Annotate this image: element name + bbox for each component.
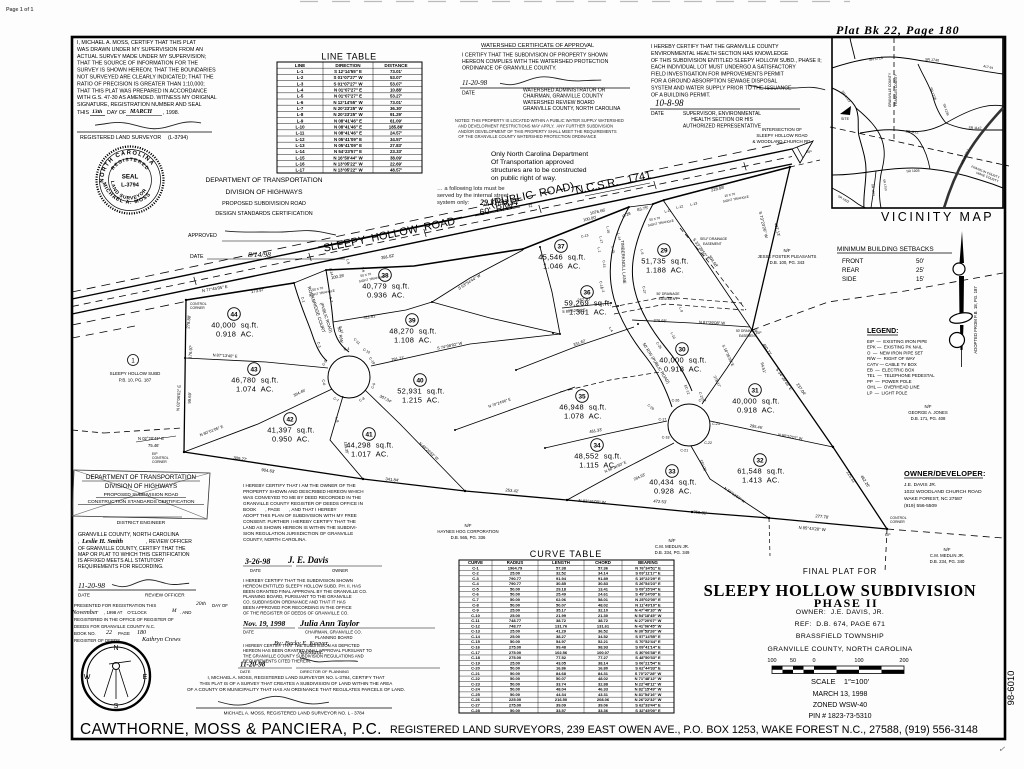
svg-text:WAS DRAWN UNDER MY SUPERVISION: WAS DRAWN UNDER MY SUPERVISION FROM AN: [77, 47, 203, 53]
svg-text:C-8: C-8: [472, 602, 479, 607]
svg-text:MINIMUM BUILDING SETBACKS: MINIMUM BUILDING SETBACKS: [837, 246, 934, 253]
svg-text:29: 29: [660, 247, 668, 254]
svg-text:Of Transportation approved: Of Transportation approved: [491, 159, 574, 166]
svg-text:1.188 AC.: 1.188 AC.: [646, 266, 684, 275]
svg-text:C-6: C-6: [472, 592, 479, 597]
svg-text:C-1: C-1: [472, 565, 479, 570]
svg-text:41: 41: [365, 431, 373, 438]
svg-text:I HEREBY CERTIFY THAT THE SUBD: I HEREBY CERTIFY THAT THE SUBDIVISION SH…: [243, 578, 353, 583]
svg-text:45,546 sq.ft.: 45,546 sq.ft.: [538, 252, 586, 261]
svg-text:51,735 sq.ft.: 51,735 sq.ft.: [641, 256, 689, 265]
svg-text:REGISTERED LAND SURVEYORS, 239: REGISTERED LAND SURVEYORS, 239 EAST OWEN…: [390, 724, 978, 736]
svg-text:48.57′: 48.57′: [390, 168, 402, 173]
svg-text:L-14: L-14: [295, 149, 305, 154]
svg-text:S 70°27′28″ W: S 70°27′28″ W: [635, 671, 662, 676]
svg-text:THIS: THIS: [77, 110, 90, 116]
svg-text:SION REGULATION JURISDICTION O: SION REGULATION JURISDICTION OF GRANVILL…: [243, 531, 353, 536]
svg-text:N 22°48′11″ W: N 22°48′11″ W: [635, 681, 662, 686]
svg-text:C-22: C-22: [704, 441, 712, 445]
svg-text:WATERSHED ADMINISTRATOR OR: WATERSHED ADMINISTRATOR OR: [523, 88, 606, 94]
svg-text:N 27°20′07″ W: N 27°20′07″ W: [635, 618, 662, 623]
svg-text:E: E: [143, 674, 148, 681]
svg-text:30.83: 30.83: [598, 581, 609, 586]
svg-text:748.77: 748.77: [509, 618, 522, 623]
svg-text:77.52: 77.52: [556, 655, 567, 660]
svg-text:22.69′: 22.69′: [390, 161, 402, 166]
svg-text:L-1: L-1: [297, 69, 304, 74]
svg-text:50.00: 50.00: [510, 692, 521, 697]
svg-text:VICINITY MAP: VICINITY MAP: [881, 210, 994, 224]
svg-text:53.07′: 53.07′: [390, 75, 402, 80]
svg-text:SUPERVISOR, ENVIRONMENTAL: SUPERVISOR, ENVIRONMENTAL: [683, 111, 761, 117]
svg-text:L-16: L-16: [295, 161, 305, 166]
svg-text:FRONT: FRONT: [842, 258, 864, 265]
svg-text:SLEEPY HOLLOW SUBD: SLEEPY HOLLOW SUBD: [110, 371, 161, 376]
svg-text:C-16: C-16: [471, 644, 480, 649]
svg-text:L-6: L-6: [297, 100, 304, 105]
svg-text:EIP — EXISTING IRON PIPE: EIP — EXISTING IRON PIPE: [867, 339, 927, 344]
svg-text:CURVE TABLE: CURVE TABLE: [530, 549, 603, 559]
svg-text:225.00: 225.00: [509, 697, 522, 702]
svg-text:L-9: L-9: [297, 118, 304, 123]
svg-text:50': 50': [916, 258, 924, 265]
svg-text:CORNER: CORNER: [890, 520, 905, 524]
svg-text:S 62°33′44″ E: S 62°33′44″ E: [635, 703, 661, 708]
svg-text:33.74: 33.74: [556, 681, 567, 686]
svg-text:CO. SUBDIVISION ORDINANCE AND: CO. SUBDIVISION ORDINANCE AND THAT IT HA…: [243, 600, 346, 605]
svg-text:41,397 sq.ft.: 41,397 sq.ft.: [267, 425, 315, 434]
svg-text:OF A COUNTY OR MUNICIPALITY TH: OF A COUNTY OR MUNICIPALITY THAT HAS AN …: [187, 687, 405, 692]
svg-text:Page 1 of 1: Page 1 of 1: [6, 7, 34, 13]
svg-text:0.928 AC.: 0.928 AC.: [654, 487, 692, 496]
svg-text:PHASE II: PHASE II: [814, 596, 878, 610]
svg-text:50.07: 50.07: [556, 676, 567, 681]
svg-text:84.31: 84.31: [598, 671, 609, 676]
svg-text:73.01′: 73.01′: [390, 100, 402, 105]
svg-text:34.52: 34.52: [598, 634, 609, 639]
svg-text:29.18: 29.18: [556, 586, 567, 591]
svg-text:50.00: 50.00: [510, 592, 521, 597]
svg-text:52,931 sq.ft.: 52,931 sq.ft.: [397, 386, 445, 395]
svg-text:98-6010: 98-6010: [1006, 671, 1017, 706]
svg-text:34.14: 34.14: [598, 571, 609, 576]
svg-text:D.B. 100, PG. 343: D.B. 100, PG. 343: [770, 260, 805, 265]
svg-text:C-13: C-13: [471, 629, 480, 634]
svg-text:208.06: 208.06: [597, 697, 610, 702]
svg-text:S 26°54′23″ E: S 26°54′23″ E: [635, 581, 661, 586]
svg-text:CAWTHORNE, MOSS & PANCIERA, P.: CAWTHORNE, MOSS & PANCIERA, P.C.: [80, 721, 382, 738]
svg-text:10-8-98: 10-8-98: [655, 98, 684, 108]
svg-text:42: 42: [286, 416, 294, 423]
svg-text:DIVISION OF HIGHWAYS: DIVISION OF HIGHWAYS: [105, 483, 177, 490]
svg-text:DAY OF: DAY OF: [107, 110, 127, 116]
svg-text:, 1998 AT O’CLOCK: , 1998 AT O’CLOCK: [104, 610, 147, 615]
svg-text:REVIEW OFFICER: REVIEW OFFICER: [145, 593, 185, 598]
svg-text:32: 32: [756, 457, 764, 464]
svg-text:OF THE GRANVILLE COUNTY WATERS: OF THE GRANVILLE COUNTY WATERSHED PROTEC…: [455, 134, 597, 139]
svg-text:21.30: 21.30: [598, 613, 609, 618]
svg-text:SCALE 1″=100′: SCALE 1″=100′: [811, 677, 870, 686]
svg-text:40,000 sq.ft.: 40,000 sq.ft.: [211, 320, 259, 329]
svg-text:BOOK NO.: BOOK NO.: [74, 631, 96, 636]
svg-text:GRANVILLE COUNTY REGISTER OF D: GRANVILLE COUNTY REGISTER OF DEEDS OFFIC…: [243, 501, 363, 506]
svg-text:N 20°23′25″ W: N 20°23′25″ W: [333, 112, 363, 117]
svg-text:S 49°24′09″ E: S 49°24′09″ E: [635, 592, 661, 597]
svg-text:1.074 AC.: 1.074 AC.: [236, 385, 274, 394]
svg-text:THAT THE SOURCE OF INFORMATION: THAT THE SOURCE OF INFORMATION FOR THE: [77, 61, 199, 67]
svg-text:WAKE FOREST, NC 27587: WAKE FOREST, NC 27587: [904, 496, 963, 502]
svg-text:54.97: 54.97: [556, 639, 567, 644]
svg-text:N 30°53′26″ W: N 30°53′26″ W: [635, 629, 662, 634]
svg-text:PAGE: PAGE: [118, 631, 130, 636]
svg-text:21.99: 21.99: [556, 613, 567, 618]
svg-text:24.61: 24.61: [598, 592, 609, 597]
svg-text:62.06: 62.06: [556, 597, 567, 602]
svg-text:Kathryn Crews: Kathryn Crews: [141, 636, 181, 643]
svg-text:OWNER: OWNER: [332, 568, 348, 573]
svg-text:CORNER: CORNER: [152, 460, 167, 464]
svg-text:C-26: C-26: [672, 399, 680, 403]
svg-text:58.01: 58.01: [598, 597, 609, 602]
svg-text:REQUIREMENTS FOR RECORDING.: REQUIREMENTS FOR RECORDING.: [78, 564, 164, 570]
svg-text:33: 33: [668, 468, 676, 475]
svg-text:275.00: 275.00: [509, 644, 522, 649]
svg-text:BEEN GRANTED FINAL APPROVAL BY: BEEN GRANTED FINAL APPROVAL BY THE GRANV…: [243, 589, 367, 594]
svg-text:N 26°22′32″ W: N 26°22′32″ W: [635, 697, 662, 702]
svg-text:L-6: L-6: [640, 249, 645, 255]
svg-text:1022 WOODLAND CHURCH ROAD: 1022 WOODLAND CHURCH ROAD: [904, 489, 982, 495]
svg-text:25.00: 25.00: [510, 613, 521, 618]
svg-text:39: 39: [408, 317, 416, 324]
svg-text:3-26-98: 3-26-98: [244, 557, 270, 566]
svg-text:32.88: 32.88: [598, 681, 609, 686]
svg-text:48.04: 48.04: [556, 687, 567, 692]
svg-text:AUTHORIZED REPRESENTATIVE: AUTHORIZED REPRESENTATIVE: [683, 123, 762, 129]
svg-text:system only:: system only:: [437, 200, 470, 206]
svg-text:DIRECTOR OF PLANNING: DIRECTOR OF PLANNING: [300, 669, 349, 674]
svg-text:SIDE: SIDE: [842, 276, 856, 283]
svg-text:S 06°21′54″ E: S 06°21′54″ E: [635, 660, 661, 665]
svg-text:40,000 sq.ft.: 40,000 sq.ft.: [659, 355, 707, 364]
svg-text:22: 22: [106, 630, 112, 636]
svg-text:11-20-98: 11-20-98: [78, 581, 105, 590]
svg-text:DATE: DATE: [243, 630, 254, 635]
svg-text:D.B. 234, PG. 340: D.B. 234, PG. 340: [930, 559, 965, 564]
svg-text:C-25: C-25: [471, 692, 480, 697]
svg-text:50.00: 50.00: [510, 586, 521, 591]
svg-text:REAR: REAR: [842, 267, 860, 274]
svg-text:N 13°05′22″ W: N 13°05′22″ W: [333, 168, 363, 173]
svg-text:790.77: 790.77: [509, 581, 522, 586]
svg-text:THAT THIS PLAT WAS PREPARED IN: THAT THIS PLAT WAS PREPARED IN ACCORDANC…: [77, 88, 208, 94]
svg-text:, 1998.: , 1998.: [163, 110, 179, 116]
svg-text:HEREON COMPLIES WITH THE WATER: HEREON COMPLIES WITH THE WATERSHED PROTE…: [462, 59, 609, 65]
svg-text:C-23: C-23: [471, 681, 480, 686]
svg-text:91.94: 91.94: [556, 576, 567, 581]
svg-text:PLANNING BOARD, PURSUANT TO TH: PLANNING BOARD, PURSUANT TO THE GRANVILL…: [243, 594, 352, 599]
svg-text:275.00: 275.00: [509, 655, 522, 660]
svg-text:EASEMENT: EASEMENT: [739, 334, 757, 338]
svg-text:INTERSECTION OF: INTERSECTION OF: [762, 127, 802, 132]
svg-text:I, MICHAEL A. MOSS, CERTIFY TH: I, MICHAEL A. MOSS, CERTIFY THAT THIS PL…: [77, 40, 197, 46]
svg-text:EASEMENT: EASEMENT: [703, 242, 722, 246]
svg-text:50.00: 50.00: [510, 639, 521, 644]
svg-text:50: 50: [790, 658, 796, 664]
svg-text:13th: 13th: [92, 109, 102, 115]
svg-text:N/F: N/F: [465, 523, 472, 528]
svg-text:L-1: L-1: [597, 247, 602, 253]
svg-text:CONSTRUCTION STANDARDS CERTIFI: CONSTRUCTION STANDARDS CERTIFICATION: [88, 499, 195, 505]
svg-text:N 05°41′09″ E: N 05°41′09″ E: [334, 143, 362, 148]
svg-text:L-2: L-2: [297, 75, 304, 80]
svg-text:30: 30: [678, 346, 686, 353]
svg-text:I CERTIFY THAT THE SUBDIVISION: I CERTIFY THAT THE SUBDIVISION OF PROPER…: [462, 53, 608, 59]
svg-text:REGISTERED IN THE OFFICE OF RE: REGISTERED IN THE OFFICE OF REGISTER OF: [74, 617, 174, 622]
svg-text:25.00: 25.00: [510, 634, 521, 639]
svg-text:40,000 sq.ft.: 40,000 sq.ft.: [732, 396, 780, 405]
svg-text:0.918 AC.: 0.918 AC.: [216, 330, 254, 339]
svg-text:1.413 AC.: 1.413 AC.: [742, 476, 780, 485]
svg-text:77.27: 77.27: [598, 655, 609, 660]
svg-text:ENVIRONMENTAL HEALTH SECTION H: ENVIRONMENTAL HEALTH SECTION HAS KNOWLED…: [651, 51, 789, 57]
svg-text:43.31: 43.31: [598, 692, 609, 697]
svg-text:1.078 AC.: 1.078 AC.: [564, 412, 602, 421]
svg-text:S 01°07′27″ W: S 01°07′27″ W: [333, 81, 363, 86]
svg-text:36: 36: [583, 289, 591, 296]
svg-text:38.72: 38.72: [556, 618, 567, 623]
svg-text:DATE: DATE: [651, 111, 665, 117]
svg-text:S: S: [114, 703, 119, 710]
svg-text:200: 200: [899, 658, 908, 664]
svg-text:… a following lots must be: … a following lots must be: [437, 186, 505, 192]
svg-text:FINAL PLAT FOR: FINAL PLAT FOR: [803, 567, 877, 576]
svg-text:SURVEY IS SHOWN HEREON; THAT T: SURVEY IS SHOWN HEREON; THAT THE BOUNDAR…: [77, 68, 216, 74]
svg-text:, REVIEW OFFICER: , REVIEW OFFICER: [146, 539, 192, 545]
svg-text:32.10: 32.10: [598, 608, 609, 613]
svg-text:BRASSFIELD TOWNSHIP: BRASSFIELD TOWNSHIP: [796, 633, 884, 640]
svg-text:L-10: L-10: [295, 124, 305, 129]
svg-text:C-27: C-27: [471, 703, 480, 708]
svg-text:46.33: 46.33: [598, 687, 609, 692]
svg-text:CHORD: CHORD: [595, 560, 611, 565]
svg-text:C-15: C-15: [602, 260, 607, 268]
svg-text:40,434 sq.ft.: 40,434 sq.ft.: [649, 477, 697, 486]
svg-text:C-18: C-18: [662, 436, 670, 440]
svg-text:1.108 AC.: 1.108 AC.: [394, 336, 432, 345]
svg-text:0.950 AC.: 0.950 AC.: [272, 435, 310, 444]
svg-text:1.017 AC.: 1.017 AC.: [351, 450, 389, 459]
svg-text:L-4: L-4: [297, 87, 304, 92]
svg-text:REGISTERED LAND SURVEYOR: REGISTERED LAND SURVEYOR: [80, 135, 161, 141]
svg-text:N 54°18′45″ W: N 54°18′45″ W: [635, 613, 662, 618]
svg-text:48.02: 48.02: [598, 602, 609, 607]
svg-text:C.M. MEDLIN JR.: C.M. MEDLIN JR.: [655, 544, 689, 549]
svg-text:C-26: C-26: [471, 697, 480, 702]
svg-text:ACTUAL SURVEY MADE UNDER MY SU: ACTUAL SURVEY MADE UNDER MY SUPERVISION;: [77, 54, 206, 60]
svg-text:OWNER/DEVELOPER:: OWNER/DEVELOPER:: [904, 469, 986, 478]
svg-text:16.86: 16.86: [556, 666, 567, 671]
svg-text:AND DEVELOPMENT RESTRICTIONS M: AND DEVELOPMENT RESTRICTIONS MAY APPLY. …: [455, 123, 613, 128]
svg-text:25.00: 25.00: [510, 629, 521, 634]
svg-text:CHAIRMAN, GRANVILLE COUNTY: CHAIRMAN, GRANVILLE COUNTY: [523, 94, 604, 100]
svg-text:DATE: DATE: [462, 91, 476, 97]
svg-text:20th: 20th: [196, 601, 206, 607]
svg-text:(L-3794): (L-3794): [168, 135, 188, 141]
svg-text:25.49: 25.49: [556, 592, 567, 597]
svg-text:C-12: C-12: [471, 623, 480, 628]
svg-text:L-3: L-3: [297, 81, 304, 86]
svg-text:N 76°34′51″ E: N 76°34′51″ E: [635, 565, 661, 570]
svg-text:NOTED: THIS PROPERTY IS LOCATE: NOTED: THIS PROPERTY IS LOCATED WITHIN A…: [455, 118, 624, 123]
svg-text:L-15: L-15: [295, 155, 305, 160]
svg-text:EB — ELECTRIC BOX: EB — ELECTRIC BOX: [867, 368, 914, 373]
svg-text:ADOPT THIS PLAN OF SUBDIVISION: ADOPT THIS PLAN OF SUBDIVISION WITH MY F…: [243, 513, 357, 518]
svg-text:EACH INDIVIDUAL LOT MUST UNDER: EACH INDIVIDUAL LOT MUST UNDERGO A SATIS…: [651, 65, 796, 71]
svg-text:13.41: 13.41: [598, 586, 609, 591]
svg-text:31: 31: [751, 387, 759, 394]
svg-text:PRESENTED FOR REGISTRATION THI: PRESENTED FOR REGISTRATION THIS: [74, 603, 156, 608]
svg-text:DISTANCE: DISTANCE: [384, 63, 407, 68]
svg-text:S 70°52′44″ E: S 70°52′44″ E: [635, 639, 661, 644]
svg-text:L-5: L-5: [297, 94, 304, 99]
svg-text:S 57°14′55″ E: S 57°14′55″ E: [635, 634, 661, 639]
svg-text:M: M: [171, 608, 177, 614]
svg-text:1.361 AC.: 1.361 AC.: [569, 308, 607, 317]
svg-text:L-11: L-11: [296, 131, 305, 136]
svg-text:39.09: 39.09: [556, 703, 567, 708]
svg-text:OHL — OVERHEAD LINE: OHL — OVERHEAD LINE: [867, 385, 920, 390]
svg-text:C-15: C-15: [471, 639, 480, 644]
svg-text:50.00: 50.00: [510, 681, 521, 686]
svg-text:N 81°54′16″ W: N 81°54′16″ W: [635, 692, 662, 697]
svg-text:C-21: C-21: [471, 671, 480, 676]
svg-text:N/F: N/F: [784, 248, 791, 253]
svg-text:N 41°06′45″ W: N 41°06′45″ W: [635, 623, 662, 628]
svg-text:N 11°49′10″ E: N 11°49′10″ E: [635, 602, 661, 607]
svg-text:PROPOSED SUBDIVISION ROAD: PROPOSED SUBDIVISION ROAD: [104, 492, 179, 498]
svg-text:0: 0: [812, 658, 815, 664]
svg-text:27.83′: 27.83′: [390, 143, 402, 148]
svg-text:RATIO OF PRECISION IS GREATER: RATIO OF PRECISION IS GREATER THAN 1:10,…: [77, 81, 205, 87]
svg-text:C-10: C-10: [471, 613, 480, 618]
svg-text:N/F: N/F: [669, 538, 676, 543]
svg-text:WAS CONVEYED TO ME BY DEED REC: WAS CONVEYED TO ME BY DEED RECORDED IN T…: [243, 495, 361, 500]
svg-text:100: 100: [854, 658, 863, 664]
svg-text:C-5: C-5: [472, 586, 479, 591]
svg-text:GRANVILLE COUNTY, NORTH CAROLI: GRANVILLE COUNTY, NORTH CAROLINA: [767, 646, 912, 653]
svg-text:30.85: 30.85: [556, 581, 567, 586]
svg-text:11-20-98: 11-20-98: [240, 661, 266, 669]
svg-text:,: ,: [78, 539, 79, 545]
svg-text:16.80: 16.80: [598, 666, 609, 671]
svg-text:DEEDS FOR GRANVILLE COUNTY N.C: DEEDS FOR GRANVILLE COUNTY N.C.: [74, 624, 155, 629]
svg-text:Leslie H. Smith: Leslie H. Smith: [81, 538, 123, 545]
svg-text:C-3: C-3: [472, 576, 479, 581]
svg-text:SITE: SITE: [841, 117, 850, 121]
svg-text:S 48°50′33″ E: S 48°50′33″ E: [635, 655, 661, 660]
svg-text:L-13: L-13: [295, 143, 305, 148]
svg-text:N: N: [113, 645, 118, 652]
svg-text:OF THE REGISTER OF DEEDS OF GR: OF THE REGISTER OF DEEDS OF GRANVILLE CO…: [243, 610, 349, 615]
svg-text:59,269 sq.ft.: 59,269 sq.ft.: [564, 298, 612, 307]
svg-text:DATE: DATE: [240, 669, 251, 674]
svg-text:MARCH 13, 1998: MARCH 13, 1998: [813, 691, 868, 698]
svg-text:LAND AS SHOWN HEREON IS WITHIN: LAND AS SHOWN HEREON IS WITHIN THE SUBDI…: [243, 525, 357, 530]
svg-text:C-22: C-22: [471, 676, 480, 681]
svg-text:275.00: 275.00: [509, 650, 522, 655]
svg-text:1.215 AC.: 1.215 AC.: [402, 396, 440, 405]
svg-text:46,948 sq.ft.: 46,948 sq.ft.: [559, 402, 607, 411]
svg-text:50' DRAINAGE: 50' DRAINAGE: [656, 292, 680, 296]
svg-text:S 09°15′34″ E: S 09°15′34″ E: [635, 586, 661, 591]
svg-text:790.77: 790.77: [509, 576, 522, 581]
svg-text:CHAIRMAN, GRANVILLE CO.: CHAIRMAN, GRANVILLE CO.: [305, 630, 362, 635]
svg-text:40,779 sq.ft.: 40,779 sq.ft.: [362, 281, 410, 290]
svg-text:N 01°07′27″ E: N 01°07′27″ E: [334, 94, 362, 99]
svg-text:D.B. 565, PG. 336: D.B. 565, PG. 336: [451, 535, 486, 540]
svg-text:53.07′: 53.07′: [390, 81, 402, 86]
svg-text:BOOK , PAGE , AND: BOOK , PAGE , AND THAT I HEREBY: [243, 507, 337, 512]
svg-text:1964.79: 1964.79: [508, 565, 523, 570]
svg-text:N 16°50′44″ W: N 16°50′44″ W: [333, 155, 363, 160]
svg-text:C-7: C-7: [472, 597, 479, 602]
svg-text:Julia Ann Taylor: Julia Ann Taylor: [299, 618, 360, 628]
svg-text:S 12°14′55″ E: S 12°14′55″ E: [334, 69, 362, 74]
svg-text:C-11: C-11: [471, 618, 480, 623]
svg-text:44.34: 44.34: [556, 692, 567, 697]
svg-text:N/F: N/F: [944, 547, 951, 552]
svg-text:LEGEND:: LEGEND:: [867, 328, 899, 335]
svg-text:25.00: 25.00: [510, 660, 521, 665]
svg-text:N/F: N/F: [925, 404, 932, 409]
svg-text:I HEREBY CERTIFY THAT I AM THE: I HEREBY CERTIFY THAT I AM THE OWNER OF …: [243, 483, 356, 488]
svg-text:23.33′: 23.33′: [390, 149, 402, 154]
svg-text:BEEN APPROVED FOR RECORDING IN: BEEN APPROVED FOR RECORDING IN THE OFFIC…: [243, 605, 352, 610]
svg-text:Nov. 19, 1998: Nov. 19, 1998: [242, 619, 285, 628]
svg-text:C.M. MEDLIN JR.: C.M. MEDLIN JR.: [930, 553, 964, 558]
svg-text:748.77: 748.77: [509, 623, 522, 628]
svg-text:W: W: [84, 674, 91, 681]
svg-text:N 47°40′10″ W: N 47°40′10″ W: [635, 608, 662, 613]
svg-text:LENGTH: LENGTH: [552, 560, 570, 565]
svg-text:43: 43: [250, 366, 258, 373]
svg-text:S 19°22′29″ E: S 19°22′29″ E: [635, 576, 661, 581]
svg-text:C-24: C-24: [471, 687, 480, 692]
svg-text:50.00: 50.00: [510, 708, 521, 713]
svg-text:THIS PLAT IS OF A SURVEY THAT: THIS PLAT IS OF A SURVEY THAT CREATES A …: [200, 681, 394, 686]
svg-text:38.09′: 38.09′: [390, 155, 402, 160]
svg-text:10.88′: 10.88′: [390, 87, 402, 92]
svg-text:S 09°11′17″ E: S 09°11′17″ E: [635, 571, 660, 576]
svg-text:on public right of way.: on public right of way.: [491, 175, 556, 182]
svg-text:PP — POWER POLE: PP — POWER POLE: [867, 379, 912, 384]
svg-text:FRANKLIN COUNTY: FRANKLIN COUNTY: [894, 73, 898, 106]
svg-text:L-3794: L-3794: [121, 183, 140, 189]
svg-text:FIELD INVESTIGATION FOR IMPROV: FIELD INVESTIGATION FOR IMPROVEMENTS PER…: [651, 72, 785, 78]
svg-text:N 20°23′25″ W: N 20°23′25″ W: [333, 106, 363, 111]
svg-text:DATE: DATE: [250, 568, 261, 573]
svg-text:33.57: 33.57: [556, 708, 567, 713]
svg-text:DAY OF: DAY OF: [212, 603, 228, 608]
svg-text:REF: D.B. 674, PAGE 671: REF: D.B. 674, PAGE 671: [795, 621, 886, 628]
svg-text:EPK — EXISTING PK NAIL: EPK — EXISTING PK NAIL: [867, 345, 923, 350]
svg-text:J. E. Davis: J. E. Davis: [287, 555, 329, 565]
svg-text:Plat Bk 22, Page 180: Plat Bk 22, Page 180: [836, 23, 960, 37]
svg-text:L-7: L-7: [297, 106, 304, 111]
svg-text:61,548 sq.ft.: 61,548 sq.ft.: [737, 466, 785, 475]
svg-text:48,270 sq.ft.: 48,270 sq.ft.: [389, 326, 437, 335]
svg-text:COUNTY, NORTH CAROLINA.: COUNTY, NORTH CAROLINA.: [243, 537, 307, 542]
